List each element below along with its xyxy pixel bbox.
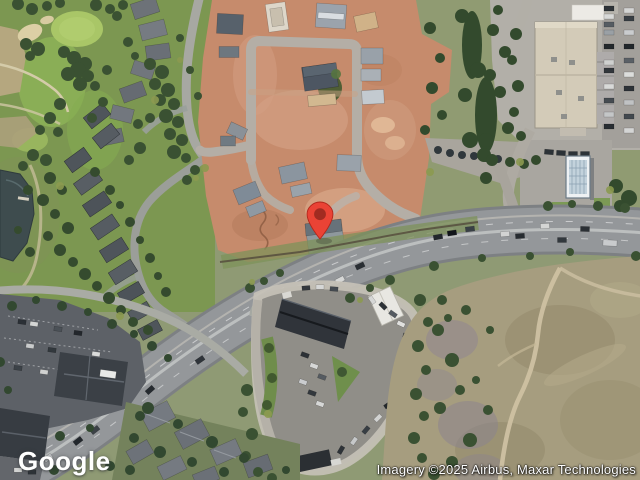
imagery-attribution: Imagery ©2025 Airbus, Maxar Technologies xyxy=(377,463,636,477)
utility-building xyxy=(566,156,594,200)
pin-shadow xyxy=(316,238,332,244)
map-pin-dot xyxy=(314,208,326,220)
satellite-map-canvas[interactable] xyxy=(0,0,640,480)
google-logo[interactable]: Google xyxy=(18,448,111,474)
map-viewport[interactable]: Google Imagery ©2025 Airbus, Maxar Techn… xyxy=(0,0,640,480)
